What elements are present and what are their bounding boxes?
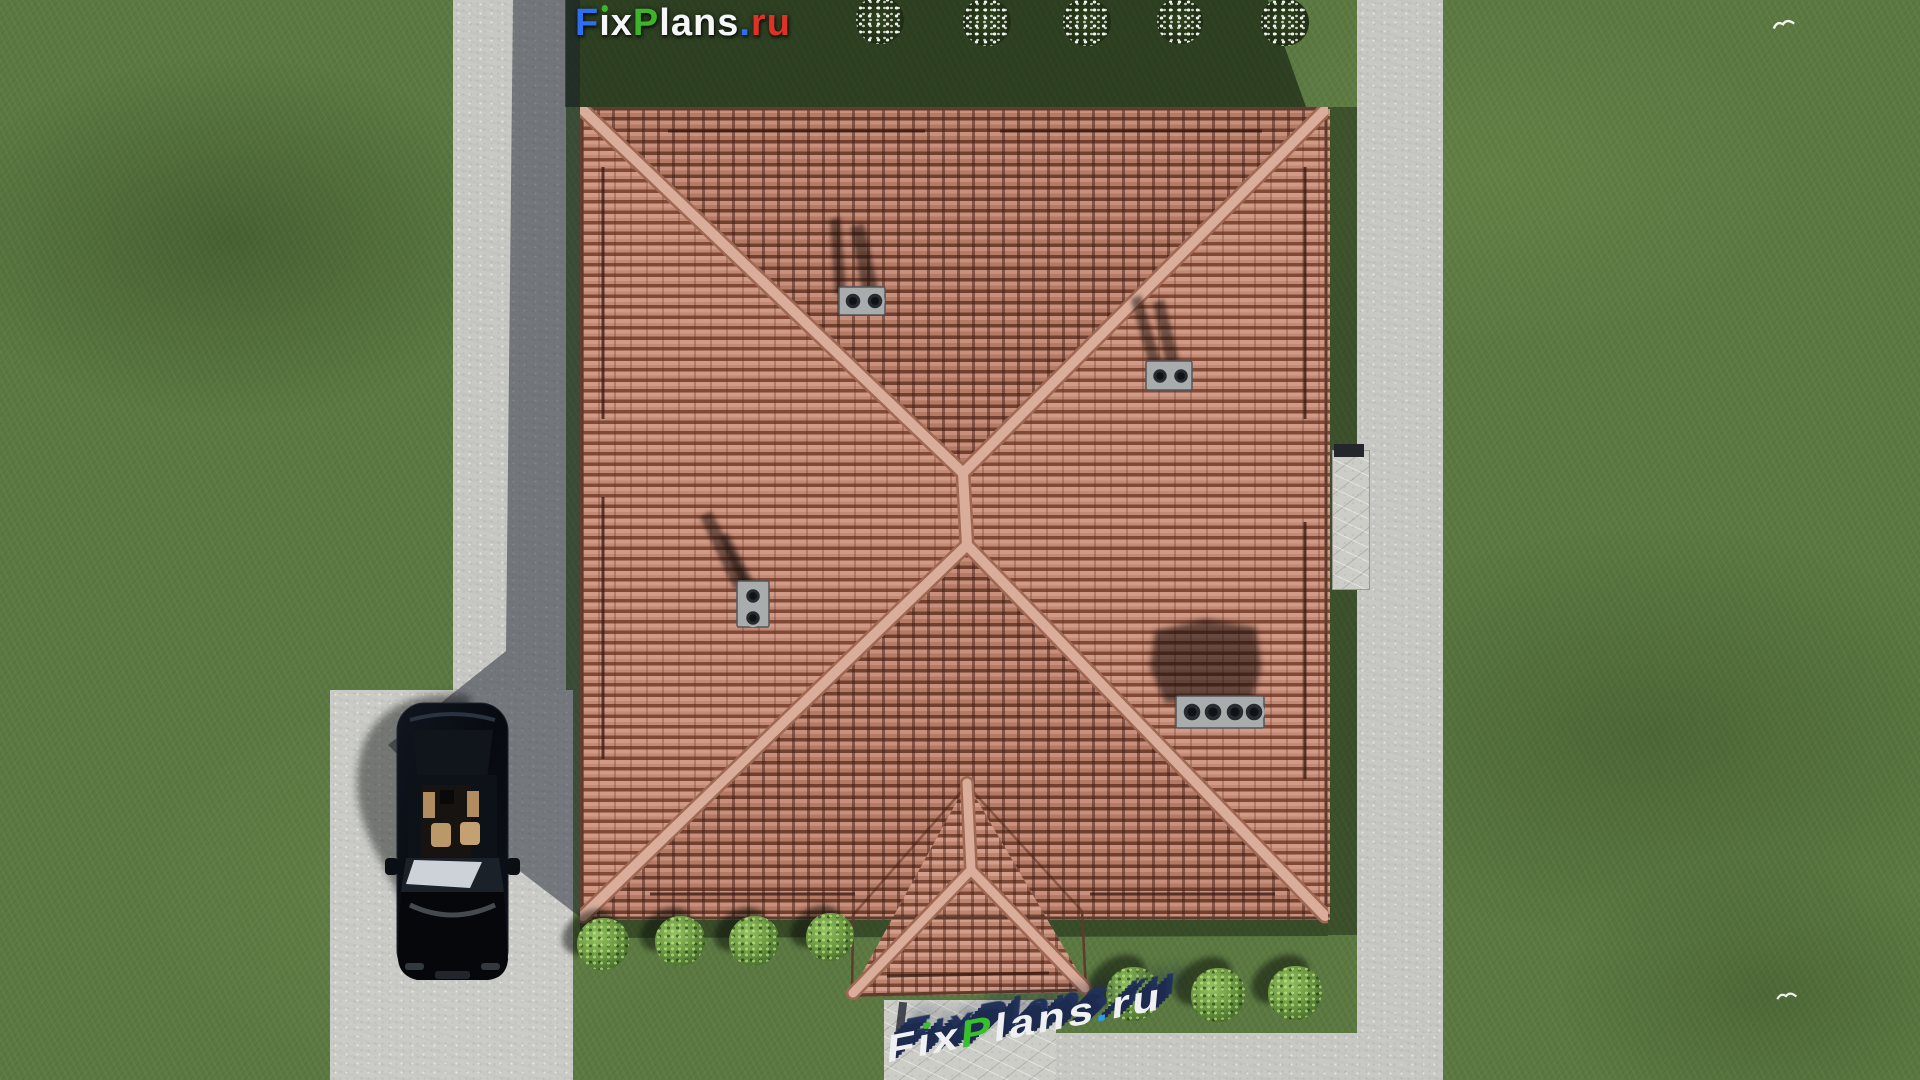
flowering-shrub [963, 0, 1011, 46]
car-mirror-right [507, 858, 520, 875]
site-logo: FıxPlans.ru [575, 2, 791, 45]
car-door-trim-right [467, 791, 479, 817]
roof-vent-group-b [1131, 295, 1192, 390]
car-headlight-left [405, 963, 424, 970]
roof-vent-group-c [700, 511, 769, 627]
car-headlight-right [481, 963, 500, 970]
porch-ridge-caps [853, 783, 1085, 993]
car-mirror-left [385, 858, 398, 875]
flowering-shrub [856, 0, 904, 44]
car-console [440, 790, 454, 804]
left-path [453, 0, 566, 700]
parked-car [330, 680, 530, 1080]
roof-vent-group-d [1150, 619, 1264, 728]
aerial-scene: FıxPlans.ru FıxPlans.ru [0, 0, 1920, 1080]
car-windshield-reflection [406, 860, 482, 888]
car-grille [435, 971, 470, 979]
roof-vent-group-a [830, 217, 885, 315]
flowering-shrub [1157, 0, 1203, 44]
flowering-shrub [1261, 0, 1309, 46]
car-door-trim-left [423, 792, 435, 818]
ridge-caps [582, 109, 1326, 916]
side-patio [1332, 450, 1370, 590]
roof-details [580, 107, 1328, 1020]
side-door-mat [1334, 444, 1364, 457]
car-seat-left [431, 823, 451, 847]
bottom-path-strip [1055, 1033, 1443, 1080]
car-seat-right [460, 822, 480, 845]
flowering-shrub [1063, 0, 1111, 46]
